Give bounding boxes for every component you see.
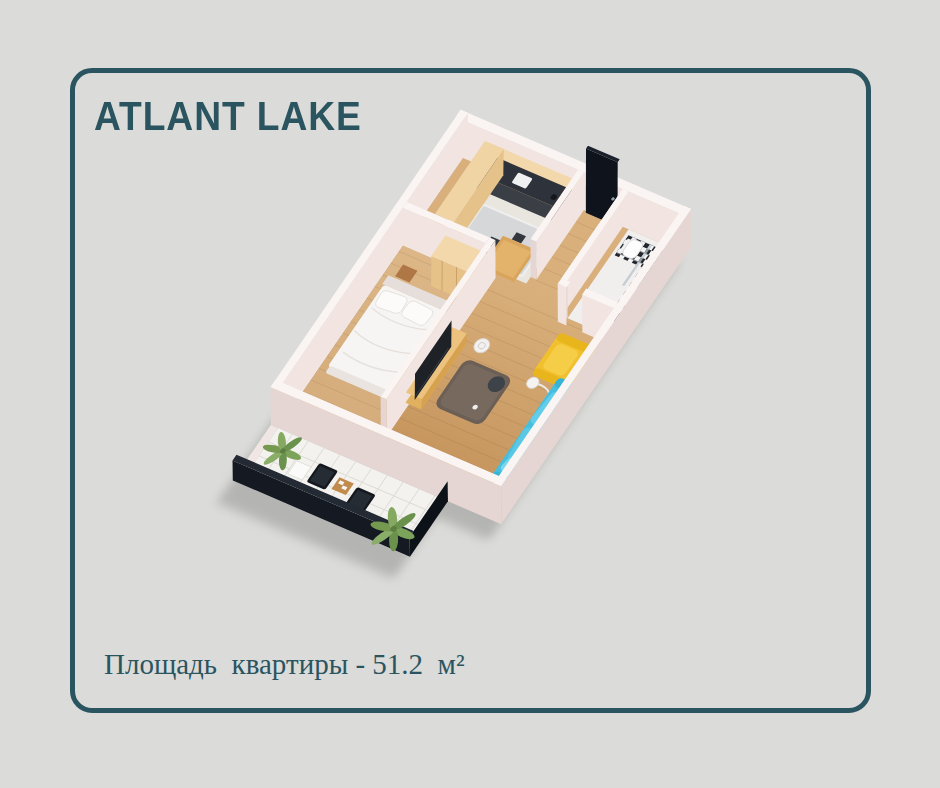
- area-label: Площадь квартиры - 51.2 м²: [104, 648, 465, 681]
- page-background: { "header": { "title": "ATLANT LAKE" }, …: [0, 0, 940, 788]
